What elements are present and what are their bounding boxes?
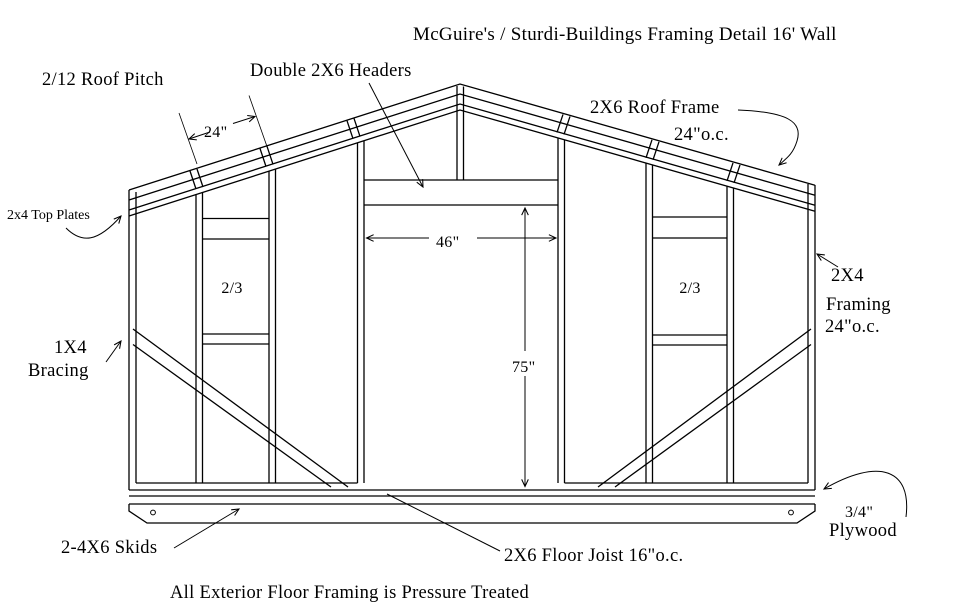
skid-hole-right (789, 510, 794, 515)
leader-skids (174, 509, 239, 548)
label-plywood-2: Plywood (829, 521, 897, 541)
framing-diagram-canvas: 24" 46" 75" 2/3 2/3 McGuire's / Sturdi-B… (0, 0, 962, 613)
let-in-braces (133, 329, 811, 487)
label-top-plates: 2x4 Top Plates (7, 208, 90, 223)
left-bay-label: 2/3 (221, 280, 242, 297)
label-bracing-2: Bracing (28, 361, 89, 381)
door-header (364, 180, 558, 205)
annotations: McGuire's / Sturdi-Buildings Framing Det… (7, 24, 897, 603)
leader-lines (66, 83, 907, 551)
label-roof-frame-2: 24"o.c. (674, 125, 729, 145)
label-floor-joist: 2X6 Floor Joist 16"o.c. (504, 546, 683, 566)
label-roof-pitch: 2/12 Roof Pitch (42, 70, 164, 90)
label-plywood-1: 3/4" (845, 504, 873, 521)
dim-door-height: 75" (512, 359, 535, 376)
label-framing-2: Framing (826, 295, 891, 315)
label-framing-1: 2X4 (831, 266, 864, 286)
framing-detail-drawing: 24" 46" 75" 2/3 2/3 McGuire's / Sturdi-B… (0, 0, 962, 613)
wall-structure (129, 106, 815, 490)
label-roof-frame-1: 2X6 Roof Frame (590, 98, 720, 118)
leader-bracing (106, 341, 121, 362)
dim-rafter-spacing: 24" (204, 124, 227, 141)
label-headers: Double 2X6 Headers (250, 61, 412, 81)
footnote-pressure-treated: All Exterior Floor Framing is Pressure T… (170, 583, 530, 603)
drawing-title: McGuire's / Sturdi-Buildings Framing Det… (413, 24, 837, 45)
leader-roof-frame (738, 110, 798, 165)
label-bracing-1: 1X4 (54, 338, 87, 358)
floor-structure (129, 490, 815, 523)
label-skids: 2-4X6 Skids (61, 538, 157, 558)
label-framing-3: 24"o.c. (825, 317, 880, 337)
skid-hole-left (151, 510, 156, 515)
dimensions: 24" 46" 75" 2/3 2/3 (179, 96, 701, 487)
dim-door-width: 46" (436, 234, 459, 251)
right-bay-label: 2/3 (679, 280, 700, 297)
